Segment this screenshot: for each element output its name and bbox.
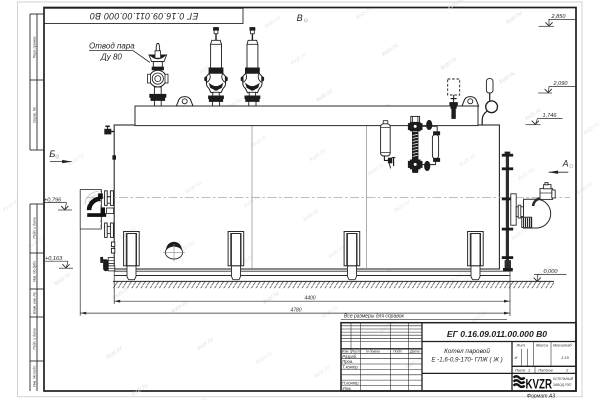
svg-text:4780: 4780 (290, 308, 301, 314)
svg-text:ЗАВОД РЭП: ЗАВОД РЭП (553, 383, 572, 387)
svg-text:Инв. No подл.: Инв. No подл. (33, 365, 37, 387)
svg-text:Лист: Лист (351, 349, 361, 353)
svg-text:Перв. примен.: Перв. примен. (33, 36, 37, 59)
svg-text:Е -1,6-0,9-170- ГЛЖ ( Ж ): Е -1,6-0,9-170- ГЛЖ ( Ж ) (431, 357, 502, 364)
svg-text:Дата: Дата (409, 349, 419, 353)
svg-text:КОТЕЛЬНЫЙ: КОТЕЛЬНЫЙ (553, 377, 574, 381)
svg-text:Подп.: Подп. (393, 349, 403, 353)
svg-text:Лист: Лист (514, 368, 526, 373)
svg-text:Формат А3: Формат А3 (527, 393, 555, 399)
svg-text:Котел паровой: Котел паровой (444, 347, 490, 355)
svg-text:Масса: Масса (536, 343, 549, 348)
svg-text:Разраб.: Разраб. (342, 354, 357, 359)
svg-text:Взам. инв. No: Взам. инв. No (33, 292, 37, 314)
svg-text:И: И (515, 355, 518, 360)
svg-text:Инв. No дубл.: Инв. No дубл. (33, 260, 37, 282)
svg-text:Отвод пара: Отвод пара (89, 42, 135, 51)
svg-text:В: В (297, 13, 303, 23)
svg-text:Пров.: Пров. (342, 359, 353, 364)
svg-text:ЕГ 0.16.09.011.00.000 В0: ЕГ 0.16.09.011.00.000 В0 (447, 329, 547, 339)
svg-text:Н.контр.: Н.контр. (342, 381, 359, 386)
svg-text:4400: 4400 (304, 296, 315, 302)
svg-text:Все размеры для справок: Все размеры для справок (344, 314, 405, 320)
svg-text:Утв.: Утв. (342, 386, 351, 391)
svg-text:0,000: 0,000 (544, 269, 559, 275)
svg-text:Ду 80: Ду 80 (100, 53, 122, 62)
svg-text:Масштаб: Масштаб (553, 343, 572, 348)
svg-text:Листов: Листов (537, 368, 553, 373)
svg-text:Справ. No: Справ. No (33, 107, 37, 123)
svg-text:Подп. и дата: Подп. и дата (33, 328, 37, 349)
svg-text:1: 1 (528, 368, 530, 373)
svg-text:KVZR: KVZR (526, 377, 553, 392)
svg-text:ЕГ 0.16.09.011.00.000 В0: ЕГ 0.16.09.011.00.000 В0 (90, 11, 199, 21)
svg-text:Б: Б (49, 148, 55, 159)
svg-text:Т.контр.: Т.контр. (342, 365, 359, 370)
svg-text:1:15: 1:15 (561, 355, 570, 360)
svg-text:А: А (562, 158, 569, 168)
svg-text:Подп. и дата: Подп. и дата (33, 217, 37, 238)
svg-text:N докум.: N докум. (366, 349, 381, 353)
svg-text:Изм: Изм (342, 349, 349, 353)
svg-text:Лит.: Лит. (516, 343, 526, 348)
